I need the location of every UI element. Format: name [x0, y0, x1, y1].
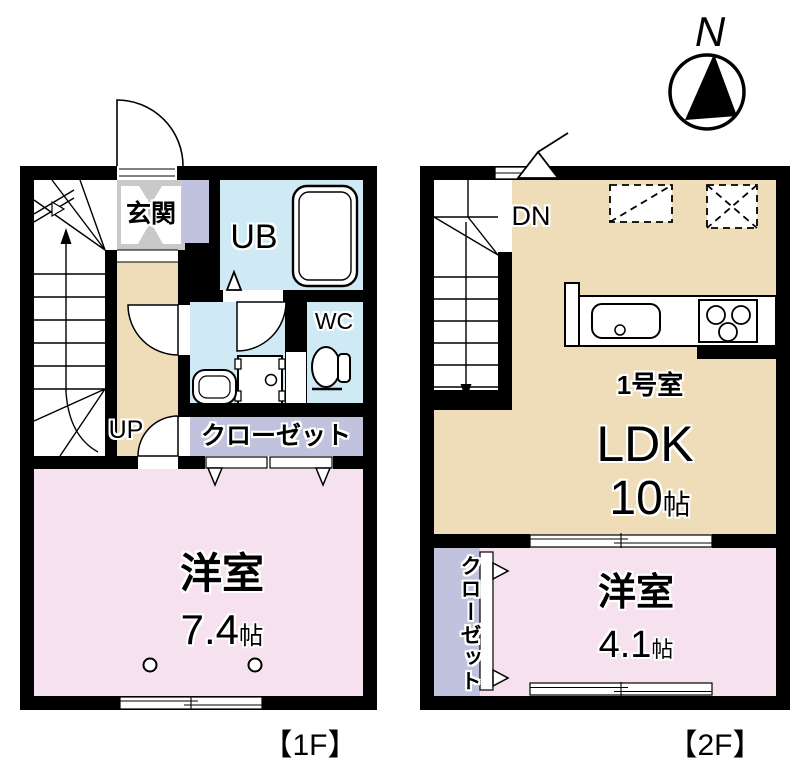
floor-tag-1f: 【1F】 [240, 720, 380, 764]
closet-2f [434, 548, 480, 696]
wc-door-gap [286, 352, 307, 403]
toilet-icon [312, 347, 350, 389]
washing-machine-icon [235, 356, 285, 404]
kitchen-sink-icon [592, 304, 660, 338]
pillar-dot [249, 659, 262, 672]
window-1f [120, 696, 262, 709]
entrance-step [117, 250, 178, 262]
bathtub-icon [293, 186, 357, 286]
window-2f [530, 682, 712, 696]
bedroom-1f [34, 469, 363, 696]
floorplan-page: N [0, 0, 800, 771]
shoe-cabinet [182, 180, 209, 243]
closet-1f [190, 417, 363, 456]
plan-2f: DN 1号室 LDK 10帖 クローゼット 洋室 4.1帖 [420, 166, 790, 710]
sliding-door-2f [530, 533, 712, 548]
entrance-door [117, 100, 183, 180]
plan-1f: 玄関 UB WC クローゼット UP 洋室 7.4帖 [20, 166, 377, 710]
pillar-dot [144, 659, 157, 672]
stove-icon [699, 300, 757, 342]
floor-tag-2f: 【2F】 [645, 720, 785, 764]
sink-icon [190, 370, 239, 405]
bedroom-2f [480, 548, 776, 696]
